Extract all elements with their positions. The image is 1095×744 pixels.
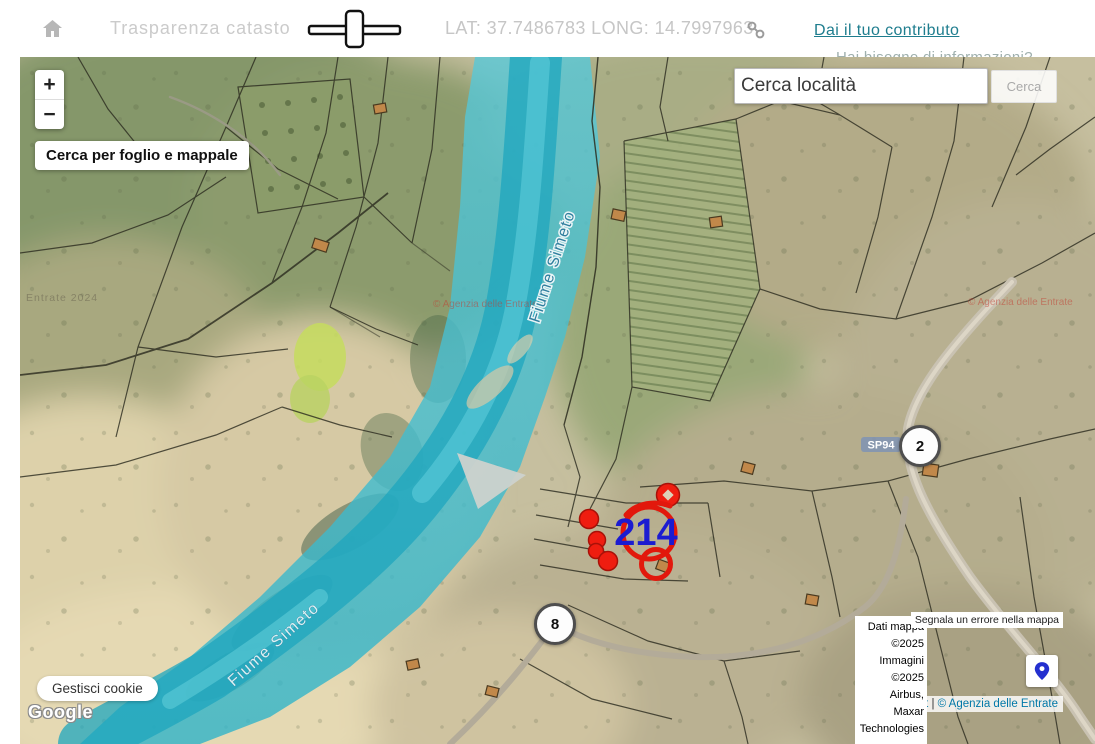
zoom-control: + − xyxy=(35,70,64,129)
agenzia-entrate-link[interactable]: © Agenzia delle Entrate xyxy=(938,698,1058,710)
map-viewport[interactable]: Entrate 2024 © Agenzia delle Entrate © A… xyxy=(20,57,1095,744)
report-map-error-link[interactable]: Segnala un errore nella mappa xyxy=(911,612,1063,628)
attribution-separator: | xyxy=(931,698,934,710)
watermark-entrate: Entrate 2024 xyxy=(26,292,98,304)
top-bar: Trasparenza catasto LAT: 37.7486783 LONG… xyxy=(0,0,1095,57)
road-shield: SP94 xyxy=(861,437,901,452)
watermark-agenzia-1: © Agenzia delle Entrate xyxy=(433,299,538,310)
link-icon[interactable] xyxy=(746,20,766,45)
search-button[interactable]: Cerca xyxy=(991,70,1057,103)
manage-cookies-button[interactable]: Gestisci cookie xyxy=(37,676,158,701)
cluster-marker-2[interactable]: 2 xyxy=(899,425,941,467)
watermark-agenzia-2: © Agenzia delle Entrate xyxy=(968,297,1073,308)
red-dot-marker[interactable] xyxy=(599,552,618,571)
contribute-link[interactable]: Dai il tuo contributo xyxy=(814,22,959,40)
search-by-sheet-parcel-button[interactable]: Cerca per foglio e mappale xyxy=(35,141,249,170)
zoom-out-button[interactable]: − xyxy=(35,100,64,129)
map-data-attribution: Dati mappa ©2025 Immagini ©2025 Airbus, … xyxy=(855,616,927,744)
lat-long-readout: LAT: 37.7486783 LONG: 14.7997963 xyxy=(445,0,754,57)
locate-marker-button[interactable] xyxy=(1026,655,1058,687)
cluster-count: 8 xyxy=(551,616,559,633)
road-shield-label: SP94 xyxy=(868,440,896,452)
red-dot-marker[interactable] xyxy=(580,510,599,529)
zoom-in-button[interactable]: + xyxy=(35,70,64,99)
cluster-count: 2 xyxy=(916,438,924,455)
parcel-number-label: 214 xyxy=(614,512,677,554)
search-input[interactable] xyxy=(734,68,988,104)
map-pin-icon xyxy=(1031,659,1053,683)
cadastre-logo-icon xyxy=(306,9,403,54)
page-title: Trasparenza catasto xyxy=(110,0,291,57)
google-watermark[interactable]: Google xyxy=(28,702,93,723)
help-text-clipped: Hai bisogno di informazioni? xyxy=(836,49,1033,57)
cluster-marker-8[interactable]: 8 xyxy=(534,603,576,645)
home-icon[interactable] xyxy=(43,20,62,42)
